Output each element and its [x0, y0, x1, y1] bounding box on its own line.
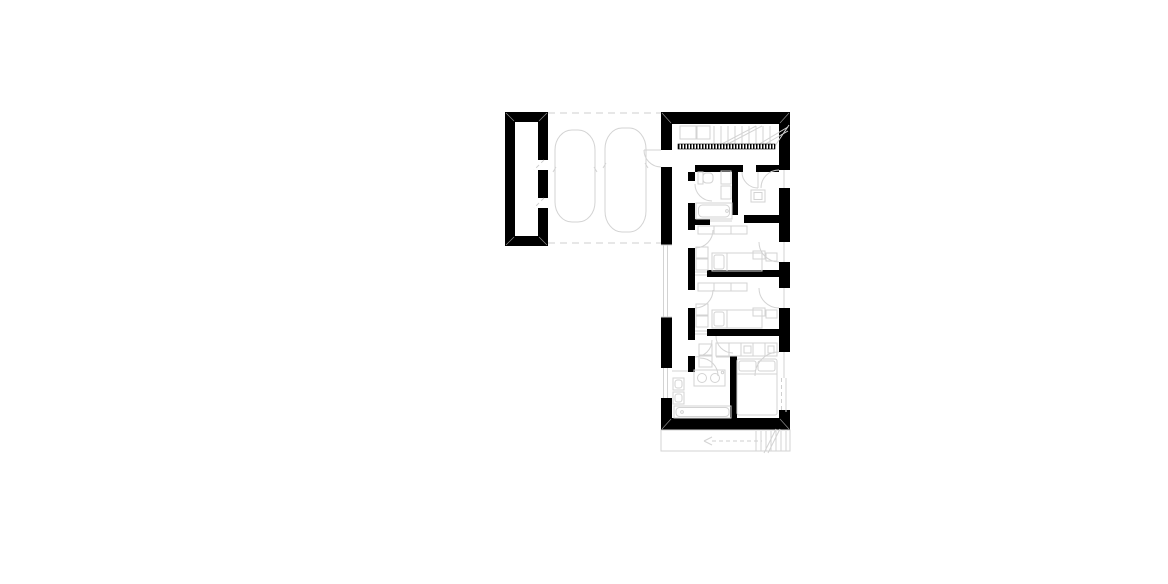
corridor-wall-seg	[688, 172, 695, 181]
corridor-wall-seg	[688, 308, 695, 340]
bed	[712, 253, 762, 271]
wc-floor-wall	[744, 215, 790, 223]
faucet	[721, 371, 723, 373]
wardrobe	[696, 259, 708, 270]
wardrobe	[696, 247, 708, 258]
pillow	[714, 255, 724, 269]
hall-door-swing	[742, 172, 758, 188]
corridor-wall-seg	[688, 248, 695, 290]
bathroom-wc-divider	[732, 166, 738, 215]
bathroom-floor-wall	[688, 219, 710, 225]
entry-closet	[697, 126, 710, 139]
wc-room	[751, 190, 765, 202]
car-2	[603, 128, 648, 232]
bed	[712, 310, 762, 328]
master-door-swing	[716, 336, 733, 353]
stair-break-lines	[718, 125, 789, 146]
bathroom	[696, 171, 732, 219]
pillow	[714, 312, 724, 326]
exterior-stair	[661, 429, 790, 453]
dressing-door-swing	[695, 340, 712, 357]
closet-row	[698, 283, 747, 291]
wing-wall-right-seg	[779, 112, 790, 170]
corridor-wall-seg	[688, 203, 695, 230]
sink	[711, 374, 720, 383]
ensuite	[673, 370, 731, 418]
hall-wall-seg	[756, 165, 779, 172]
shower	[751, 190, 765, 202]
storage-room	[505, 112, 548, 246]
storage-wall-bottom	[505, 236, 548, 246]
nightstand	[753, 308, 765, 316]
direction-arrow	[704, 437, 762, 445]
bathroom-door-swing	[695, 184, 712, 201]
pillow	[739, 361, 756, 371]
bedroom2-terrace-door-swing	[759, 288, 779, 308]
storage-wall-right-seg	[538, 208, 548, 236]
wing-wall-bottom	[661, 418, 790, 430]
storage-wall-right-seg	[538, 170, 548, 198]
car-outline	[605, 128, 646, 232]
wall-cabinet	[721, 171, 731, 184]
wardrobe-row	[716, 343, 777, 356]
bathtub	[696, 203, 732, 219]
wing-wall-left-seg	[661, 398, 672, 420]
toilet	[698, 172, 713, 184]
storage-door-leaf	[534, 198, 544, 208]
bedroom2-door-swing	[695, 290, 713, 308]
car-outline	[555, 130, 595, 222]
wing-wall-left-seg	[661, 317, 672, 368]
bedroom-divider-wall	[707, 329, 790, 336]
wing-wall-left-seg	[661, 167, 672, 245]
bathtub	[674, 406, 731, 418]
floor-plan-canvas	[0, 0, 1168, 584]
wing-wall-right-seg	[779, 410, 790, 420]
wardrobe	[696, 316, 708, 327]
wall-cabinet	[721, 186, 731, 199]
storage-door-leaf	[534, 160, 544, 170]
vanity	[694, 370, 725, 386]
sink	[698, 374, 707, 383]
storage-wall-left	[505, 112, 515, 246]
nightstand	[766, 310, 777, 318]
carport	[505, 112, 661, 246]
entry-stair	[678, 125, 789, 149]
wardrobe	[696, 304, 708, 315]
wc-exterior-door-swing	[761, 170, 779, 188]
stair-railing-hatch	[678, 144, 775, 149]
floor-plan	[0, 0, 1168, 584]
main-wing	[644, 112, 790, 453]
car-1	[553, 130, 597, 222]
bedroom-1	[696, 226, 777, 271]
storage-wall-top	[505, 112, 548, 122]
entrance-door-swing	[644, 150, 661, 167]
toilet	[673, 378, 684, 390]
storage-wall-right-seg	[538, 122, 548, 160]
nightstand	[766, 253, 777, 261]
entry-closet	[680, 126, 696, 139]
closet-row	[698, 226, 747, 234]
bidet	[673, 392, 684, 404]
bedroom-2	[696, 283, 777, 328]
wing-wall-top	[661, 112, 790, 124]
pillow	[758, 361, 775, 371]
